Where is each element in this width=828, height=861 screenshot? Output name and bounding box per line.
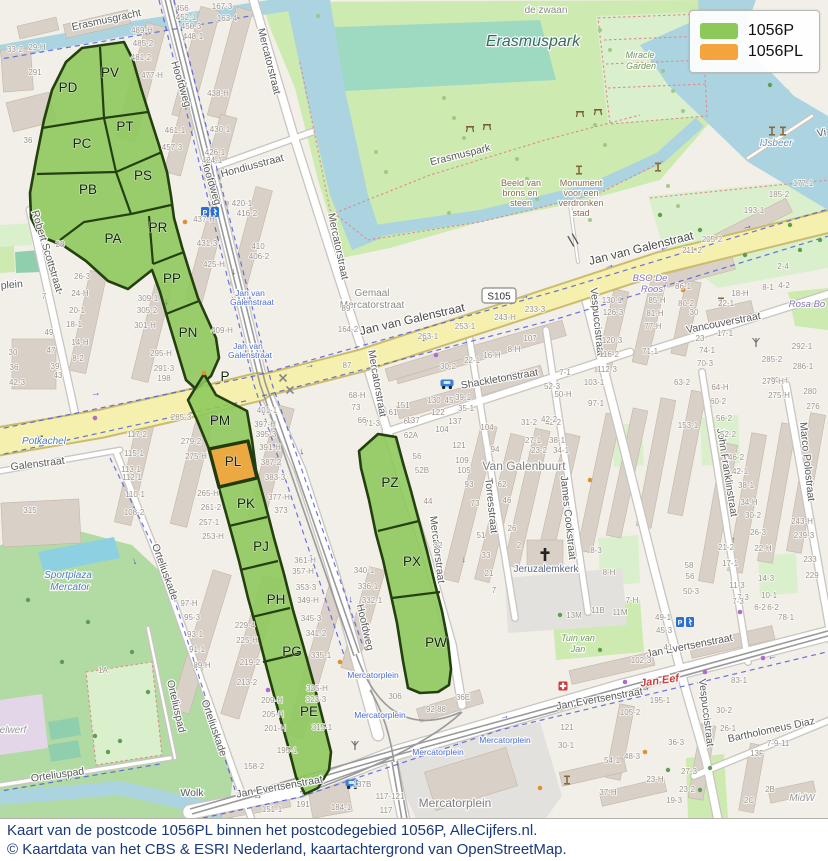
house-number: 213-2: [237, 678, 258, 687]
house-number: 22-1: [718, 299, 735, 308]
tree-icon: [658, 213, 662, 217]
house-number: 36: [10, 363, 19, 372]
house-number: 107: [523, 334, 537, 343]
house-number: 461-1: [165, 126, 186, 135]
house-number: 2B: [765, 785, 775, 794]
house-number: 191: [296, 800, 310, 809]
first-aid-icon: [559, 682, 568, 691]
house-number: 425-H: [203, 260, 225, 269]
postcode-label-PN: PN: [179, 325, 198, 340]
house-number: 120-3: [602, 336, 623, 345]
house-number: 387-2: [261, 458, 282, 467]
house-number: 229-4: [235, 621, 256, 630]
tree-icon: [661, 69, 665, 73]
postcode-label-PE: PE: [300, 704, 318, 719]
house-number: 87: [343, 361, 352, 370]
house-number: 263-1: [418, 332, 439, 341]
poi-dot-icon: [761, 656, 766, 661]
house-number: 20-1: [69, 306, 86, 315]
house-number: 6-2: [754, 603, 766, 612]
house-number: 27-3: [681, 767, 698, 776]
house-number: 8-H: [603, 568, 616, 577]
house-number: 420-1: [232, 199, 253, 208]
house-number: 103-1: [584, 378, 605, 387]
house-number: 30: [9, 348, 18, 357]
house-number: 91-1: [189, 645, 206, 654]
house-number: 391-H: [259, 443, 281, 452]
landuse-parkLight: [0, 223, 32, 247]
house-number: 47: [47, 346, 56, 355]
house-number: 77-H: [644, 322, 662, 331]
map-legend: 1056P 1056PL: [689, 10, 820, 73]
street-label: steen: [510, 198, 532, 208]
house-number: 2: [517, 541, 522, 550]
house-number: 286-1: [793, 362, 814, 371]
poi-dot-icon: [703, 670, 708, 675]
house-number: 58: [685, 561, 694, 570]
house-number: 30-1: [558, 741, 575, 750]
postcode-label-PL: PL: [225, 454, 242, 469]
tree-icon: [86, 620, 90, 624]
house-number: 23: [696, 334, 705, 343]
house-number: 7-9-11: [767, 739, 790, 748]
house-number: 193-1: [744, 206, 765, 215]
house-number: 430-1: [210, 125, 231, 134]
tree-icon: [698, 788, 702, 792]
house-number: 151: [396, 401, 410, 410]
house-number: 261-2: [201, 503, 222, 512]
house-number: 95-3: [184, 613, 201, 622]
house-number: 239-3: [794, 531, 815, 540]
postcode-label-PS: PS: [134, 168, 152, 183]
house-number: 345-3: [301, 614, 322, 623]
tree-icon: [588, 218, 592, 222]
house-number: 323-3: [306, 695, 327, 704]
oneway-arrow-icon: →: [460, 555, 471, 565]
house-number: 13M: [566, 611, 582, 620]
postcode-label-PX: PX: [403, 554, 421, 569]
house-number: 291-3: [154, 364, 175, 373]
house-number: 36: [24, 136, 33, 145]
house-number: 225-H: [236, 636, 258, 645]
house-number: 42-1: [732, 467, 749, 476]
house-number: 41: [664, 643, 673, 652]
house-number: 452-1: [176, 13, 197, 22]
house-number: 104: [435, 425, 449, 434]
house-number: 37-H: [599, 788, 617, 797]
house-number: 315: [23, 506, 37, 515]
house-number: 357-H: [292, 567, 314, 576]
street-label: Van Galenbuurt: [482, 459, 566, 473]
postcode-label-PW: PW: [425, 635, 447, 650]
svg-text:P: P: [678, 620, 683, 627]
house-number: 336-1: [358, 582, 379, 591]
house-number: 122: [431, 408, 445, 417]
house-number: 26-1: [720, 724, 737, 733]
house-number: 28: [56, 240, 65, 249]
house-number: 17-1: [722, 559, 739, 568]
tree-icon: [698, 228, 702, 232]
house-number: 11B: [591, 606, 605, 615]
street-label: Wolk: [180, 787, 204, 799]
house-number: 253-1: [455, 322, 476, 331]
house-number: 66: [358, 416, 367, 425]
house-number: 56-2: [716, 414, 733, 423]
house-number: 205-H: [262, 710, 284, 719]
street-label: Rosa Bo: [789, 299, 825, 310]
house-number: 195-1: [277, 746, 298, 755]
house-number: 42-3: [9, 378, 26, 387]
house-number: 46-2: [728, 453, 745, 462]
house-number: 137B: [353, 780, 372, 789]
legend-label-1056P: 1056P: [748, 22, 794, 40]
house-number: 377-H: [268, 493, 290, 502]
house-number: 335-1: [311, 651, 332, 660]
house-number: 34-1: [553, 446, 570, 455]
street-label: Gemaal: [354, 288, 389, 299]
house-number: 68-H: [348, 391, 366, 400]
house-number: 36-3: [668, 738, 685, 747]
street-label: Galenstraat: [230, 297, 275, 307]
poi-dot-icon: [266, 688, 271, 693]
poi-dot-icon: [202, 371, 207, 376]
house-number: 438-H: [207, 89, 229, 98]
parking-icon: P: [676, 617, 684, 627]
house-number: 14-H: [71, 338, 89, 347]
house-number: 110-1: [125, 490, 145, 499]
house-number: 158-2: [244, 762, 265, 771]
street-label: verdronken: [558, 198, 603, 208]
poi-dot-icon: [538, 786, 543, 791]
street-label: Jeruzalemkerk: [513, 564, 579, 575]
tree-icon: [708, 766, 712, 770]
house-number: 481-2: [131, 53, 152, 62]
house-number: 163-4: [217, 14, 238, 23]
house-number: 437-H: [193, 215, 215, 224]
house-number: 450-3: [181, 22, 202, 31]
tree-icon: [818, 238, 822, 242]
house-number: 219-2: [240, 658, 261, 667]
poi-dot-icon: [623, 680, 628, 685]
house-number: 341-2: [306, 629, 327, 638]
street-label: Miracle: [625, 50, 654, 60]
poi-dot-icon: [643, 750, 648, 755]
house-number: 276: [806, 402, 820, 411]
house-number: 184-1: [331, 803, 352, 812]
house-number: 257-1: [199, 518, 220, 527]
legend-item-1056P: 1056P: [700, 22, 803, 40]
postcode-label-PM: PM: [210, 413, 230, 428]
house-number: 275-H: [768, 391, 790, 400]
house-number: 46: [503, 496, 512, 505]
tree-icon: [452, 116, 456, 120]
house-number: 30: [690, 308, 699, 317]
house-number: 78-1: [778, 613, 795, 622]
house-number: 8-2: [72, 354, 84, 363]
house-number: 233: [803, 555, 817, 564]
house-number: 10-1: [761, 591, 778, 600]
street-label: Jan: [570, 644, 586, 654]
tree-icon: [666, 184, 670, 188]
house-number: 52-2: [720, 430, 737, 439]
house-number: 361-H: [294, 556, 316, 565]
house-number: 29-H: [28, 43, 46, 52]
house-number: 112-1: [122, 473, 142, 482]
tree-icon: [130, 650, 134, 654]
house-number: 49: [45, 328, 54, 337]
poi-dot-icon: [738, 610, 743, 615]
house-number: 23-H: [646, 775, 664, 784]
landuse-park: [0, 246, 15, 273]
house-number: 34-H: [740, 498, 758, 507]
house-number: 448-1: [183, 32, 204, 41]
house-number: 243-H: [494, 313, 516, 322]
house-number: 7-H: [626, 596, 639, 605]
postcode-label-PP: PP: [163, 271, 181, 286]
house-number: 8-1: [762, 283, 774, 292]
house-number: 102-3: [631, 656, 652, 665]
street-label: plein: [0, 278, 23, 292]
house-number: 35-1: [458, 404, 475, 413]
house-number: 104: [480, 423, 494, 432]
street-label: Roos: [641, 284, 663, 295]
house-number: 7-1: [559, 368, 571, 377]
caption-line-2: © Kaartdata van het CBS & ESRI Nederland…: [7, 840, 828, 859]
tree-icon: [462, 136, 466, 140]
street-label: Mercatorplein: [419, 796, 492, 810]
house-number: 306: [388, 692, 402, 701]
house-number: 38-1: [549, 436, 566, 445]
house-number: 108-2: [124, 508, 145, 517]
tree-icon: [598, 648, 602, 652]
postcode-label-PC: PC: [73, 136, 92, 151]
house-number: 26: [508, 524, 517, 533]
house-number: 45-3: [656, 626, 673, 635]
house-number: 71-1: [642, 347, 659, 356]
house-number: 30-2: [440, 362, 457, 371]
house-number: 126-3: [603, 308, 624, 317]
house-number: 373: [274, 506, 288, 515]
house-number: 16-H: [483, 351, 501, 360]
street-label: Monument: [560, 178, 603, 188]
house-number: 85-H: [648, 296, 666, 305]
house-number: 291: [28, 68, 42, 77]
house-number: 280: [803, 387, 817, 396]
street-label: stad: [572, 208, 589, 218]
tree-icon: [60, 660, 64, 664]
tree-icon: [384, 170, 388, 174]
house-number: 23-2: [679, 785, 696, 794]
house-number: 11-3: [729, 581, 745, 590]
house-number: 81-H: [646, 309, 664, 318]
house-number: 26-3: [74, 272, 91, 281]
postcode-label-PT: PT: [116, 119, 133, 134]
house-number: 56: [686, 572, 695, 581]
house-number: 63-2: [674, 378, 691, 387]
house-number: 39: [51, 362, 60, 371]
house-number: 137: [448, 417, 462, 426]
house-number: 130: [427, 396, 441, 405]
tree-icon: [603, 143, 607, 147]
house-number: 121: [560, 723, 574, 732]
postcode-label-PD: PD: [59, 80, 78, 95]
house-number: 33: [482, 551, 491, 560]
house-number: 332-1: [362, 596, 383, 605]
house-number: 229: [805, 571, 819, 580]
house-number: 167-3: [212, 2, 233, 11]
house-number: 205-2: [702, 235, 723, 244]
house-number: 349-H: [297, 596, 319, 605]
house-number: 209-H: [261, 696, 283, 705]
tree-icon: [442, 96, 446, 100]
house-number: 6-2: [767, 603, 779, 612]
landuse-field: [310, 20, 556, 92]
house-number: 105-2: [620, 708, 641, 717]
house-number: 27-1: [525, 436, 542, 445]
house-number: 285-3: [171, 413, 192, 422]
house-number: 93: [465, 480, 474, 489]
house-number: 2C: [744, 796, 754, 805]
postcode-label-PB: PB: [79, 182, 97, 197]
house-number: 44: [424, 497, 433, 506]
house-number: 86-1: [675, 282, 692, 291]
tree-icon: [608, 48, 612, 52]
house-number: 397-H: [254, 420, 276, 429]
postcode-label-PR: PR: [149, 220, 168, 235]
house-number: 74-1: [699, 346, 716, 355]
house-number: 23-2: [531, 446, 548, 455]
house-number: 410: [251, 242, 265, 251]
map-screenshot: PP→→→→→→→→→→→→→→→→→→→→S105ErasmusgrachtH…: [0, 0, 828, 861]
house-number: 18-H: [731, 289, 749, 298]
house-number: 117-2: [127, 430, 147, 439]
tree-icon: [118, 739, 122, 743]
house-number: 45: [445, 396, 454, 405]
house-number: 19-3: [666, 796, 683, 805]
street-label: MidW: [789, 793, 816, 804]
caption-line-1: Kaart van de postcode 1056PL binnen het …: [7, 821, 828, 840]
house-number: 17-1: [717, 329, 734, 338]
house-number: 18-1: [66, 320, 83, 329]
house-number: 50-3: [683, 587, 700, 596]
house-number: 30-2: [745, 511, 762, 520]
legend-label-1056PL: 1056PL: [748, 43, 803, 61]
house-number: 489-H: [131, 26, 153, 35]
house-number: 456: [175, 4, 189, 13]
house-number: 164-2: [338, 325, 359, 334]
house-number: 51: [477, 531, 486, 540]
house-number: 285-2: [762, 355, 783, 364]
tree-icon: [743, 253, 747, 257]
house-number: 26-3: [750, 528, 767, 537]
street-label: Mercatorplein: [354, 710, 406, 720]
house-number: 30-2: [716, 706, 733, 715]
house-number: 305-2: [137, 306, 158, 315]
tree-icon: [598, 28, 602, 32]
svg-text:S105: S105: [487, 292, 511, 303]
tree-icon: [26, 598, 30, 602]
street-label: Sportplaza: [44, 570, 92, 581]
house-number: 477-H: [141, 71, 163, 80]
house-number: 340-1: [354, 566, 375, 575]
house-number: 48-3: [624, 752, 641, 761]
charging-icon: [686, 617, 694, 627]
house-number: 8-3: [590, 546, 602, 555]
house-number: 64-H: [711, 383, 729, 392]
house-number: 485-2: [133, 39, 154, 48]
house-number: 11M: [613, 608, 628, 617]
tree-icon: [146, 690, 150, 694]
house-number: 121: [452, 441, 466, 450]
poi-dot-icon: [338, 660, 343, 665]
house-number: 62: [498, 480, 507, 489]
house-number: 211-2: [682, 246, 702, 255]
poi-dot-icon: [434, 353, 439, 358]
house-number: 195-1: [650, 696, 671, 705]
postcode-label-PZ: PZ: [381, 475, 398, 490]
house-number: 295-H: [150, 349, 172, 358]
tree-icon: [447, 211, 451, 215]
house-number: 117: [380, 806, 393, 815]
house-number: 93-1: [187, 630, 204, 639]
house-number: 1A: [98, 666, 108, 675]
house-number: 38-1: [738, 481, 755, 490]
legend-swatch-1056P: [700, 23, 738, 39]
house-number: 309-1: [138, 294, 159, 303]
street-label: brons en: [502, 188, 537, 198]
street-label: Potkachel: [22, 436, 67, 447]
house-number: 7: [42, 292, 47, 301]
house-number: 89: [342, 304, 351, 313]
house-number: 201-H: [264, 724, 286, 733]
house-number: 73: [471, 499, 480, 508]
tree-icon: [666, 768, 670, 772]
house-number: 115-1: [124, 449, 144, 458]
house-number: 279-2: [181, 437, 202, 446]
house-number: 117-121: [376, 792, 405, 801]
house-number: 49-1: [655, 613, 672, 622]
house-number: 395-3: [256, 430, 277, 439]
house-number: 275-H: [185, 452, 207, 461]
house-number: 198: [157, 374, 171, 383]
house-number: 7-3: [732, 597, 744, 606]
postcode-label-PG: PG: [282, 644, 302, 659]
oneway-arrow-icon: →: [90, 387, 102, 400]
oneway-arrow-icon: →: [228, 266, 240, 277]
house-number: 265-H: [197, 489, 219, 498]
house-number: 233-3: [525, 305, 546, 314]
house-number: 50-H: [554, 390, 572, 399]
house-number: 60-2: [710, 397, 727, 406]
house-number: 4-2: [778, 281, 790, 290]
house-number: 92 88: [426, 705, 447, 714]
house-number: 71-3: [364, 419, 381, 428]
street-label: voor een: [563, 188, 598, 198]
house-number: 112-3: [597, 365, 617, 374]
postcode-label-PA: PA: [104, 231, 121, 246]
house-number: 151-1: [262, 805, 283, 814]
tree-icon: [106, 750, 110, 754]
postcode-label-PV: PV: [101, 65, 119, 80]
route-badge-S105: S105: [482, 288, 516, 303]
building: [1, 499, 81, 547]
street-label: IJsbeer: [760, 138, 793, 149]
house-number: 33-2: [7, 45, 24, 54]
landuse-plaza: [505, 568, 627, 633]
postcode-label-PJ: PJ: [253, 539, 269, 554]
house-number: 383-3: [265, 473, 286, 482]
house-number: 301-H: [134, 321, 156, 330]
